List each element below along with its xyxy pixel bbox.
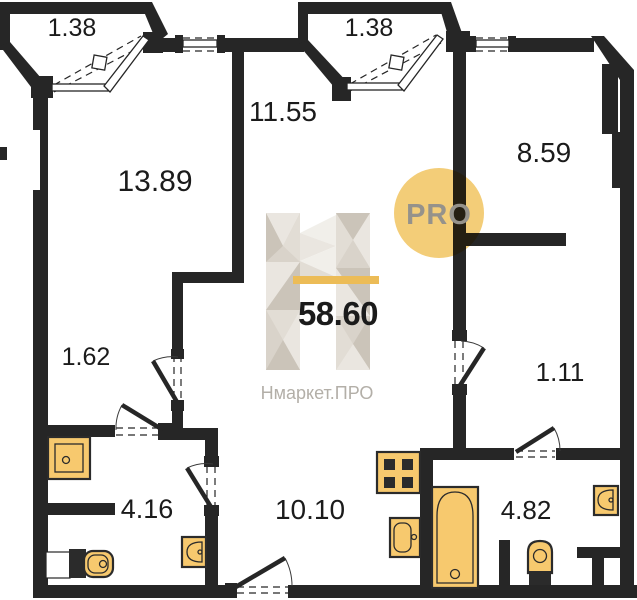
door-bathroom-left-second-icon <box>187 464 215 507</box>
room-area-label-corridor-left: 1.62 <box>62 343 111 371</box>
door-corridor-left-icon <box>153 355 181 402</box>
toilet-right-icon <box>528 541 552 585</box>
room-area-label-room-right: 8.59 <box>517 137 572 168</box>
logo-letter-right-bar <box>336 213 370 370</box>
kitchen-sink-icon <box>390 518 420 557</box>
brand-label: Нмаркет.ПРО <box>261 383 374 403</box>
stove-icon <box>377 452 420 493</box>
pro-badge: PRO <box>394 168 484 258</box>
balcony-mid-window-icon <box>347 35 443 91</box>
logo-accent-bar <box>293 276 379 284</box>
door-corridor-right-icon <box>455 341 484 387</box>
entrance-door-icon <box>234 558 292 593</box>
floor-plan-drawing: 1.38 1.38 11.55 13.89 8.59 1.62 1.11 4.1… <box>0 0 637 600</box>
room-area-label-hall: 11.55 <box>249 96 317 127</box>
wall-niche <box>46 552 70 578</box>
window-room-right-icon <box>476 38 509 51</box>
floor-plan: 1.38 1.38 11.55 13.89 8.59 1.62 1.11 4.1… <box>0 0 637 600</box>
room-area-label-kitchen: 10.10 <box>275 494 345 525</box>
bathtub-icon <box>432 487 478 588</box>
window-room-left-icon <box>183 38 217 51</box>
watermark-logo <box>266 213 379 370</box>
room-area-label-bathroom-right: 4.82 <box>501 495 552 525</box>
door-bathroom-right-icon <box>516 428 560 457</box>
room-area-label-corridor-right: 1.11 <box>536 357 585 387</box>
sink-bathroom-left-icon <box>182 537 206 567</box>
room-area-label-balcony-mid: 1.38 <box>345 14 394 42</box>
room-area-label-balcony-left: 1.38 <box>48 14 97 42</box>
sink-bathroom-right-icon <box>594 486 618 515</box>
toilet-left-icon <box>69 549 113 578</box>
room-area-label-bathroom-left: 4.16 <box>121 494 174 524</box>
room-area-label-room-left: 13.89 <box>117 165 192 198</box>
logo-crossbar <box>300 215 336 277</box>
balcony-left-window-icon <box>52 36 149 92</box>
door-bathroom-left-icon <box>116 405 163 435</box>
shower-tray-icon <box>48 437 90 479</box>
pro-badge-label: PRO <box>406 199 472 231</box>
total-area-label: 58.60 <box>298 295 378 332</box>
logo-letter-left-bar <box>266 213 300 370</box>
